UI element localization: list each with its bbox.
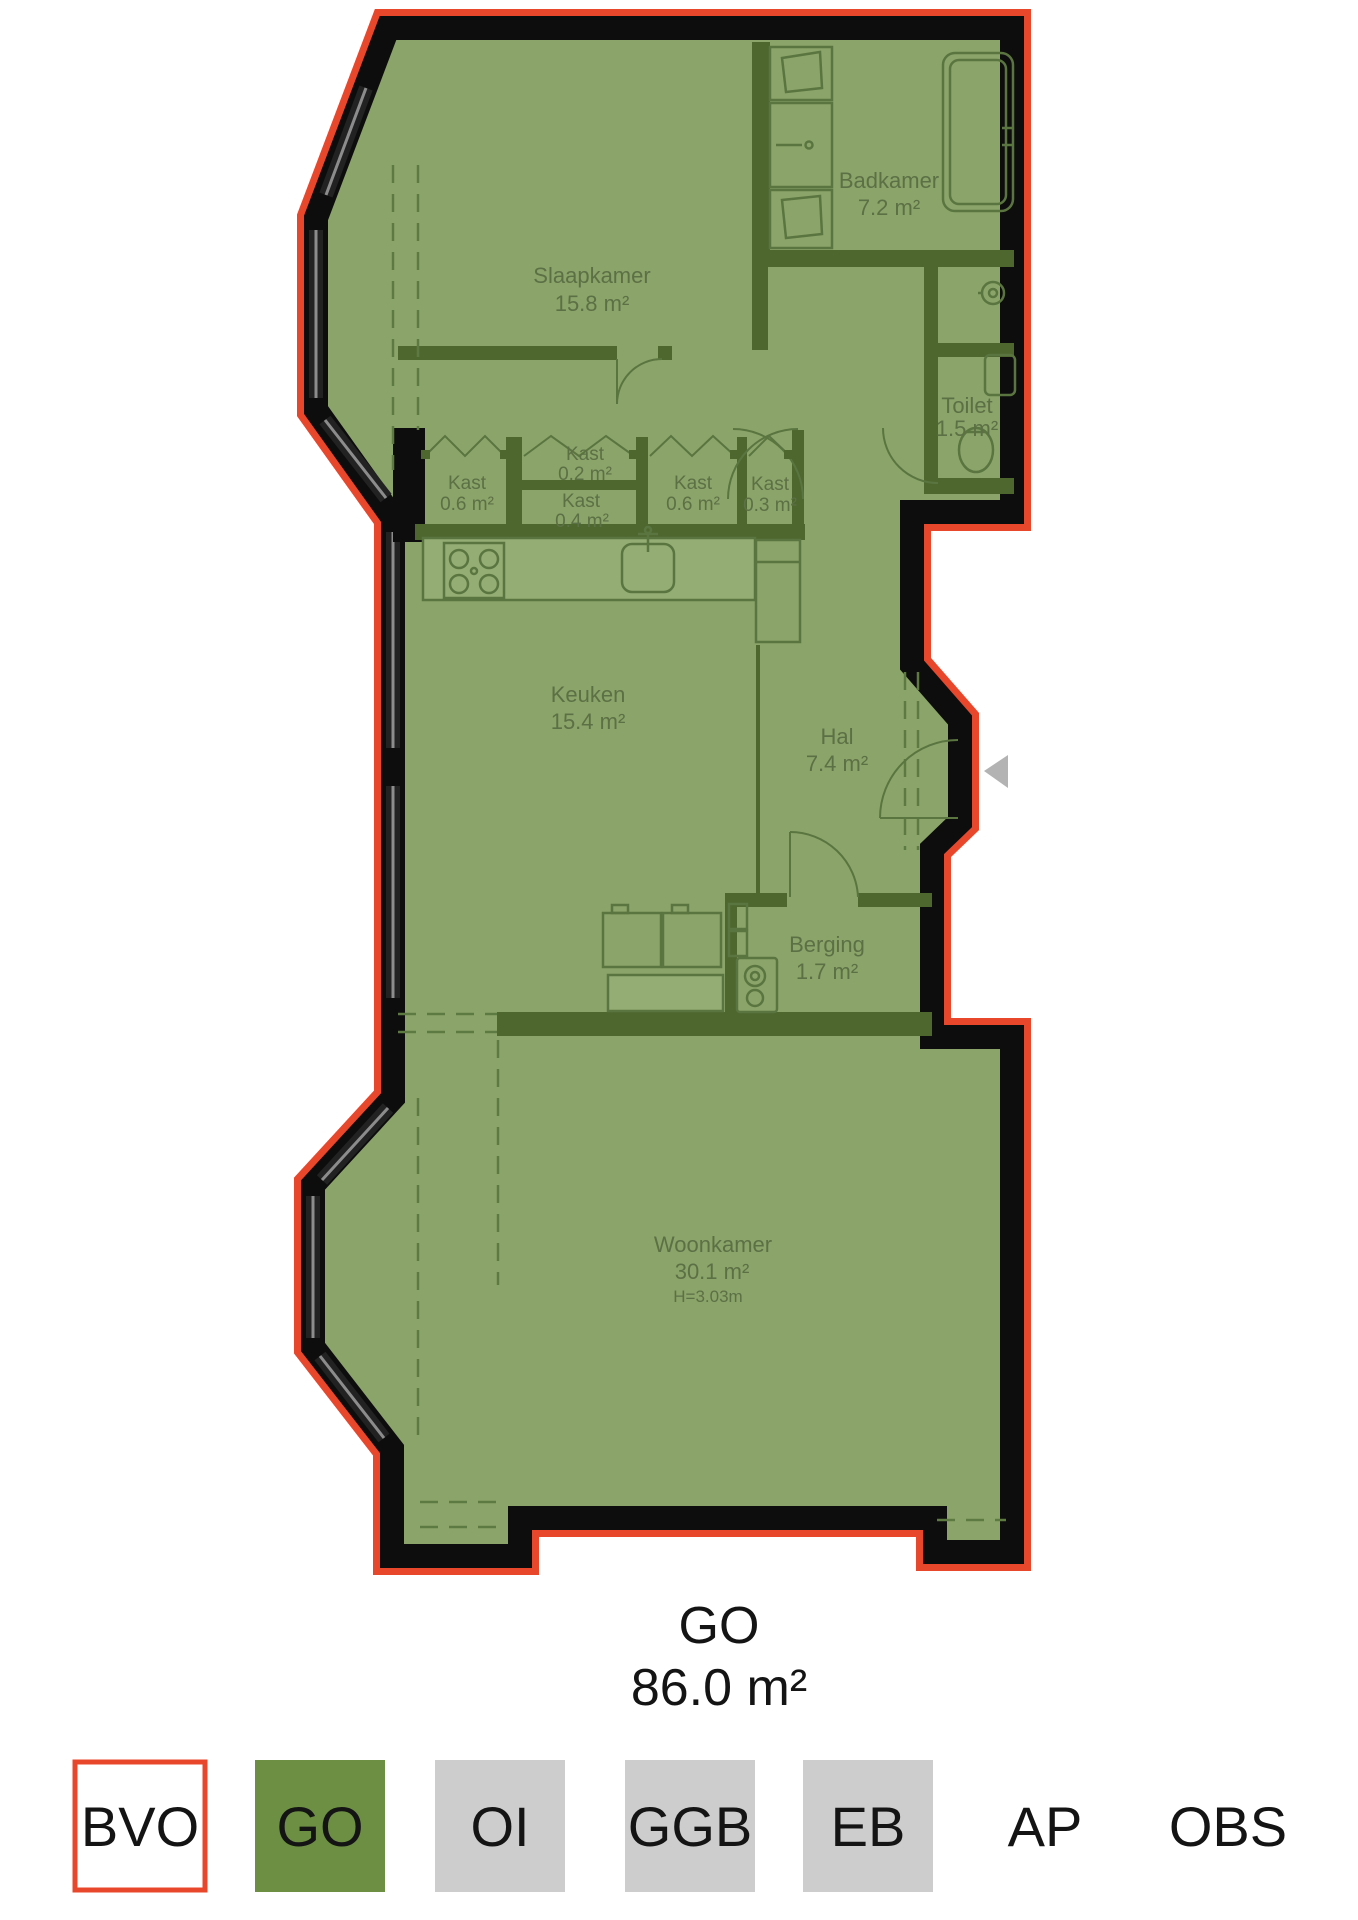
room-name: Kast <box>566 444 605 465</box>
room-name: Badkamer <box>839 168 939 193</box>
room-area: 0.2 m² <box>558 464 612 485</box>
room-area: 1.7 m² <box>796 959 858 984</box>
room-area: 15.8 m² <box>555 291 630 316</box>
legend-label[interactable]: OBS <box>1169 1795 1287 1858</box>
room-area: 0.6 m² <box>666 494 720 515</box>
legend-label[interactable]: AP <box>1008 1795 1083 1858</box>
floorplan-canvas: Slaapkamer 15.8 m² Badkamer 7.2 m² Toile… <box>0 0 1358 1920</box>
entrance-arrow-icon <box>984 755 1008 788</box>
room-label-toilet: Toilet 1.5 m² <box>936 393 998 441</box>
legend-item-ap[interactable]: AP <box>1008 1795 1083 1858</box>
room-label-kast-5: Kast 0.3 m² <box>743 474 797 516</box>
legend-label[interactable]: BVO <box>81 1795 199 1858</box>
room-name: Hal <box>820 724 853 749</box>
summary-label: GO <box>679 1597 760 1655</box>
room-area: 0.4 m² <box>555 511 609 532</box>
room-name: Woonkamer <box>654 1232 772 1257</box>
legend-label[interactable]: GGB <box>628 1795 752 1858</box>
room-area: 30.1 m² <box>675 1259 750 1284</box>
room-area: 0.6 m² <box>440 494 494 515</box>
legend-label[interactable]: OI <box>470 1795 529 1858</box>
legend: BVO GO OI GGB EB AP OBS <box>75 1760 1287 1892</box>
room-name: Kast <box>751 474 790 495</box>
legend-label[interactable]: GO <box>276 1795 363 1858</box>
room-label-kast-4: Kast 0.6 m² <box>666 473 720 515</box>
legend-item-go[interactable]: GO <box>255 1760 385 1892</box>
room-label-kast-1: Kast 0.6 m² <box>440 473 494 515</box>
room-name: Kast <box>674 473 713 494</box>
legend-item-ggb[interactable]: GGB <box>625 1760 755 1892</box>
room-area: 7.2 m² <box>858 195 920 220</box>
room-label-kast-2: Kast 0.2 m² <box>558 444 612 485</box>
summary-value: 86.0 m² <box>631 1659 807 1717</box>
legend-item-obs[interactable]: OBS <box>1169 1795 1287 1858</box>
legend-item-oi[interactable]: OI <box>435 1760 565 1892</box>
legend-item-bvo[interactable]: BVO <box>75 1762 205 1890</box>
room-area: 15.4 m² <box>551 709 626 734</box>
room-ceiling-height: H=3.03m <box>673 1287 742 1306</box>
room-area: 0.3 m² <box>743 495 797 516</box>
legend-label[interactable]: EB <box>831 1795 906 1858</box>
room-name: Slaapkamer <box>533 263 650 288</box>
room-name: Berging <box>789 932 865 957</box>
area-summary: GO 86.0 m² <box>631 1597 807 1717</box>
room-name: Kast <box>448 473 487 494</box>
room-name: Kast <box>562 491 601 512</box>
room-area: 1.5 m² <box>936 416 998 441</box>
floorplan-page: Slaapkamer 15.8 m² Badkamer 7.2 m² Toile… <box>0 0 1358 1920</box>
room-name: Keuken <box>551 682 626 707</box>
room-area: 7.4 m² <box>806 751 868 776</box>
legend-item-eb[interactable]: EB <box>803 1760 933 1892</box>
room-name: Toilet <box>941 393 992 418</box>
